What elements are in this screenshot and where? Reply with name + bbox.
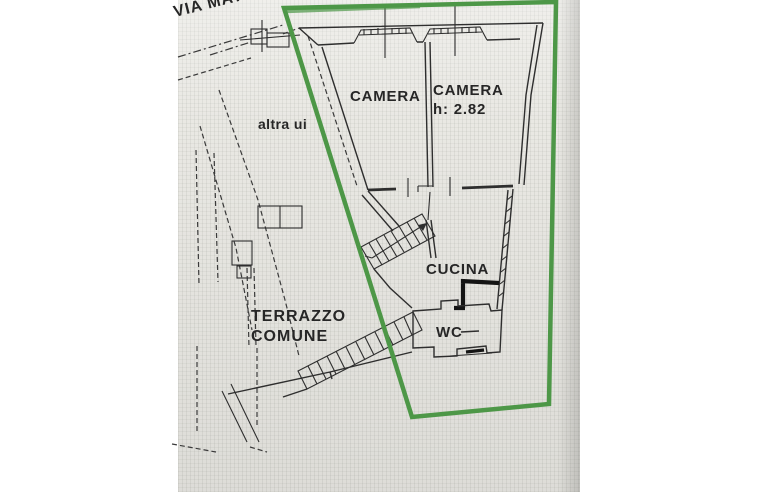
terrace-boundary <box>228 352 412 397</box>
screenshot-page: VIA MAT altra ui CAMERA CAMERA h: 2.82 C… <box>0 0 764 492</box>
camera-left-label: CAMERA <box>350 88 421 105</box>
camera-right-label: CAMERA <box>433 82 504 99</box>
wc-label: WC <box>436 324 463 341</box>
neighbor-structures <box>222 20 302 442</box>
window-symbol-left <box>354 7 417 58</box>
property-boundary-highlight <box>284 2 556 417</box>
cucina-label: CUCINA <box>426 261 489 278</box>
floor-plan-drawing: VIA MAT altra ui CAMERA CAMERA h: 2.82 C… <box>0 0 764 492</box>
neighbor-dashed-lines <box>172 25 357 452</box>
wc-door-hatch <box>466 350 484 352</box>
interior-staircase <box>361 214 435 269</box>
terrazzo-label-line2: COMUNE <box>251 328 328 345</box>
window-symbol-right <box>423 5 487 56</box>
kitchen-thick-wall <box>454 279 499 308</box>
terrazzo-label-line1: TERRAZZO <box>251 308 346 325</box>
apartment-walls <box>299 5 543 310</box>
wc-leader-line <box>461 331 479 332</box>
camera-right-height-label: h: 2.82 <box>433 101 486 118</box>
street-label: VIA MAT <box>172 0 245 21</box>
neighbor-unit-label: altra ui <box>258 116 307 132</box>
